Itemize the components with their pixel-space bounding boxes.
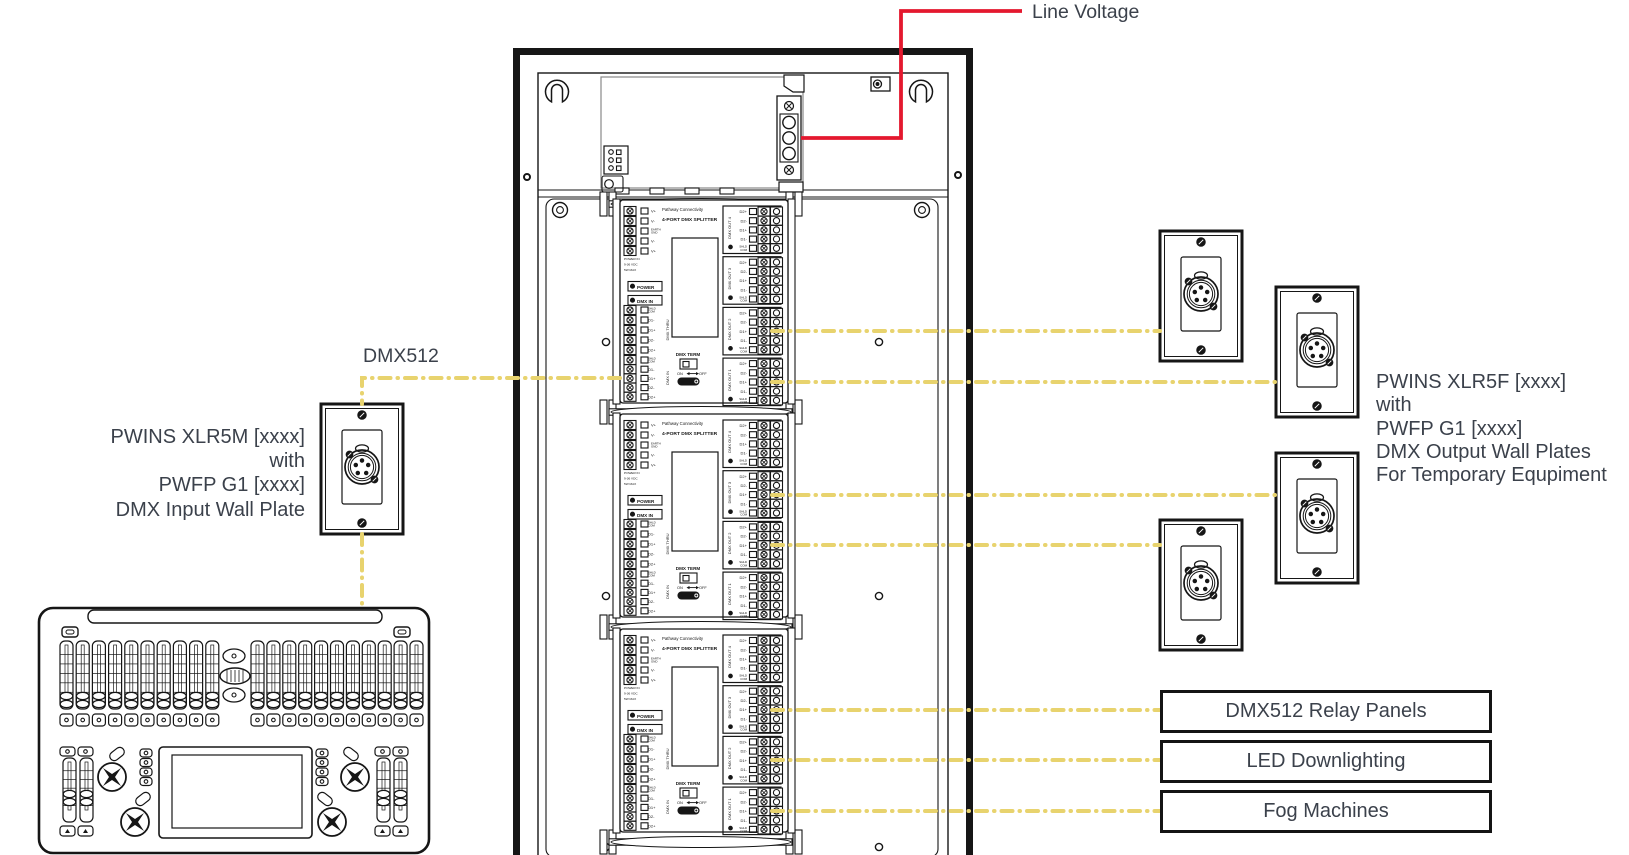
thru-label: DMX THRU bbox=[665, 319, 670, 340]
din-clamp bbox=[795, 830, 802, 854]
fader-knob bbox=[315, 692, 328, 699]
terminal-label: COM bbox=[740, 563, 747, 567]
terminal-label: D2- bbox=[741, 483, 748, 488]
terminal-label: D2- bbox=[741, 799, 748, 804]
fader-knob bbox=[141, 700, 154, 707]
fader-knob bbox=[378, 692, 391, 699]
caption-line: PWFP G1 [xxxx] bbox=[40, 473, 305, 497]
pin-icon bbox=[1206, 290, 1209, 293]
terminal-label: COM bbox=[740, 513, 747, 517]
terminal-label: GND bbox=[651, 445, 657, 449]
output-wall-plate-caption: PWINS XLR5F [xxxx] with PWFP G1 [xxxx] D… bbox=[1376, 371, 1607, 487]
terminal-label: COM bbox=[648, 360, 655, 364]
power-supply bbox=[601, 75, 804, 194]
terminal-label: D1- bbox=[741, 501, 748, 506]
fader-knob bbox=[347, 700, 360, 707]
psu-foot bbox=[685, 188, 699, 194]
dmx-splitter-module-2: Pathway Connectivity4-PORT DMX SPLITTERV… bbox=[613, 413, 795, 620]
terminal-label: D1- bbox=[741, 818, 748, 823]
din-clamp bbox=[600, 192, 607, 216]
pin-icon bbox=[1311, 354, 1314, 357]
fader-knob bbox=[377, 798, 390, 805]
terminal-label: V+ bbox=[651, 209, 657, 214]
dmx-system-diagram: Pathway Connectivity4-PORT DMX SPLITTERV… bbox=[0, 0, 1629, 855]
keyhole-mount-slot bbox=[546, 80, 569, 102]
fader-knob bbox=[410, 700, 423, 707]
terminal-label: V+ bbox=[651, 463, 657, 468]
fader-knob bbox=[93, 700, 106, 707]
terminal-label: D1+ bbox=[740, 657, 748, 662]
terminal-label: COM bbox=[740, 778, 747, 782]
pin-icon bbox=[367, 463, 370, 466]
term-on-label: ON bbox=[677, 585, 683, 590]
fader-knob bbox=[125, 700, 138, 707]
din-clamp bbox=[600, 400, 607, 424]
equipment-box-fog-machines: Fog Machines bbox=[1160, 790, 1492, 833]
output-label: DMX OUT 4 bbox=[727, 430, 732, 452]
terminal-label: COM bbox=[740, 728, 747, 732]
terminal-label: D1+ bbox=[740, 228, 748, 233]
dmx-in-label: DMX IN bbox=[665, 371, 670, 385]
din-clamp bbox=[600, 615, 607, 639]
psu-terminal-block bbox=[777, 96, 801, 180]
fader-knob bbox=[157, 700, 170, 707]
module-rail bbox=[613, 199, 620, 404]
terminal-label: D1- bbox=[741, 389, 748, 394]
terminal-label: D2+ bbox=[648, 394, 656, 399]
fader-knob bbox=[63, 798, 76, 805]
din-clamp bbox=[600, 830, 607, 854]
terminal-label: V+ bbox=[651, 638, 657, 643]
terminal-label: D1+ bbox=[740, 707, 748, 712]
dmx-term-label: DMX TERM bbox=[676, 781, 701, 786]
terminal-label: D1- bbox=[741, 552, 748, 557]
led-icon bbox=[631, 727, 635, 731]
fader-knob bbox=[394, 790, 407, 797]
pin-icon bbox=[1195, 298, 1198, 301]
output-label: DMX OUT 4 bbox=[727, 216, 732, 238]
led-label: DMX IN bbox=[637, 299, 654, 304]
fader-knob bbox=[377, 790, 390, 797]
terminal-label: D2- bbox=[741, 370, 748, 375]
output-led-icon bbox=[729, 347, 733, 351]
output-label: DMX OUT 1 bbox=[727, 797, 732, 819]
terminal-label: V- bbox=[651, 668, 655, 673]
psu-foot bbox=[650, 188, 664, 194]
terminal-label: D2- bbox=[648, 552, 655, 557]
terminal-label: D1+ bbox=[740, 329, 748, 334]
terminal-label: D1+ bbox=[740, 278, 748, 283]
fader-knob bbox=[331, 700, 344, 707]
pin-icon bbox=[1320, 520, 1323, 523]
terminal-label: COM bbox=[740, 677, 747, 681]
terminal-label: D2+ bbox=[740, 423, 748, 428]
input-wall-plate-caption: PWINS XLR5M [xxxx] with PWFP G1 [xxxx] D… bbox=[40, 425, 305, 522]
terminal-label: V+ bbox=[651, 678, 657, 683]
power-note: 9-36 VDC bbox=[624, 263, 638, 267]
plate-outer bbox=[1160, 520, 1242, 650]
module-brand: Pathway Connectivity bbox=[662, 421, 704, 426]
fader-knob bbox=[109, 692, 122, 699]
iso-label: ISO 5V bbox=[681, 593, 694, 598]
fader-knob bbox=[63, 790, 76, 797]
module-rail bbox=[788, 413, 795, 618]
terminal-label: D2+ bbox=[648, 777, 656, 782]
caption-line: PWFP G1 [xxxx] bbox=[1376, 418, 1607, 441]
din-clamp bbox=[795, 615, 802, 639]
connector-pin-icon bbox=[617, 150, 622, 155]
terminal-label: COM bbox=[740, 299, 747, 303]
terminal-label: D1+ bbox=[648, 757, 656, 762]
fader-knob bbox=[125, 692, 138, 699]
fader-knob bbox=[80, 790, 93, 797]
fader-knob bbox=[267, 692, 280, 699]
terminal-label: D1+ bbox=[740, 594, 748, 599]
pin-icon bbox=[360, 459, 363, 462]
terminal-label: D2+ bbox=[740, 525, 748, 530]
connector-pin-icon bbox=[617, 158, 622, 163]
terminal-label: D1- bbox=[741, 603, 748, 608]
fader-knob bbox=[410, 692, 423, 699]
output-led-icon bbox=[729, 510, 733, 514]
module-rail bbox=[788, 628, 795, 833]
led-label: POWER bbox=[637, 285, 655, 290]
caption-line: with bbox=[40, 449, 305, 473]
output-label: DMX OUT 1 bbox=[727, 582, 732, 604]
output-label: DMX OUT 2 bbox=[727, 318, 732, 340]
fader-knob bbox=[190, 692, 203, 699]
fader-knob bbox=[363, 700, 376, 707]
terminal-label: D1- bbox=[648, 796, 655, 801]
terminal-label: D2+ bbox=[648, 562, 656, 567]
lighting-console bbox=[39, 608, 429, 853]
output-led-icon bbox=[729, 397, 733, 401]
pin-icon bbox=[1322, 346, 1325, 349]
terminal-label: D2- bbox=[741, 647, 748, 652]
pin-icon bbox=[1206, 579, 1209, 582]
terminal-label: GND bbox=[651, 660, 657, 664]
output-led-icon bbox=[729, 674, 733, 678]
fader-knob bbox=[76, 692, 89, 699]
terminal-label: COM bbox=[740, 614, 747, 618]
terminal-label: D2- bbox=[741, 432, 748, 437]
power-note: 5W MAX bbox=[624, 268, 636, 272]
dmx-splitter-module-1: Pathway Connectivity4-PORT DMX SPLITTERV… bbox=[613, 199, 795, 406]
terminal-label: D1- bbox=[648, 532, 655, 537]
module-model: 4-PORT DMX SPLITTER bbox=[662, 217, 718, 223]
fader-knob bbox=[331, 692, 344, 699]
module-model: 4-PORT DMX SPLITTER bbox=[662, 646, 718, 652]
console-button bbox=[223, 688, 245, 702]
terminal-label: D1+ bbox=[740, 442, 748, 447]
dmx-splitter-module-3: Pathway Connectivity4-PORT DMX SPLITTERV… bbox=[613, 628, 795, 835]
terminal-label: D2- bbox=[741, 320, 748, 325]
terminal-label: V- bbox=[651, 219, 655, 224]
terminal-label: V- bbox=[651, 433, 655, 438]
caption-line: PWINS XLR5F [xxxx] bbox=[1376, 371, 1607, 394]
terminal-label: D1+ bbox=[648, 376, 656, 381]
terminal-label: D2+ bbox=[740, 311, 748, 316]
terminal-label: COM bbox=[648, 574, 655, 578]
equipment-box-relay-panels: DMX512 Relay Panels bbox=[1160, 690, 1492, 733]
terminal-label: D1+ bbox=[740, 380, 748, 385]
thru-label: DMX THRU bbox=[665, 748, 670, 769]
terminal-label: D1+ bbox=[648, 805, 656, 810]
pin-icon bbox=[1309, 346, 1312, 349]
terminal-label: D1- bbox=[648, 318, 655, 323]
din-clamp bbox=[795, 400, 802, 424]
terminal-label: D2+ bbox=[740, 474, 748, 479]
power-note: POWER IN bbox=[624, 257, 640, 261]
fader-knob bbox=[347, 692, 360, 699]
pin-icon bbox=[365, 471, 368, 474]
pin-icon bbox=[1315, 508, 1318, 511]
output-label: DMX OUT 2 bbox=[727, 747, 732, 769]
output-label: DMX OUT 3 bbox=[727, 481, 732, 503]
terminal-label: D1+ bbox=[740, 492, 748, 497]
pin-icon bbox=[1193, 290, 1196, 293]
fader-knob bbox=[141, 692, 154, 699]
fader-knob bbox=[174, 692, 187, 699]
din-clamp bbox=[795, 192, 802, 216]
dmx512-label: DMX512 bbox=[363, 345, 439, 368]
fader-knob bbox=[190, 700, 203, 707]
terminal-label: D1- bbox=[741, 451, 748, 456]
terminal-label: D1+ bbox=[648, 542, 656, 547]
fader-knob bbox=[109, 700, 122, 707]
psu-bracket bbox=[779, 182, 803, 192]
terminal-label: COM bbox=[740, 248, 747, 252]
pin-icon bbox=[1315, 342, 1318, 345]
dmx-output-wall-plate-1 bbox=[1160, 231, 1242, 361]
fader-knob bbox=[60, 692, 73, 699]
fader-knob bbox=[394, 700, 407, 707]
fader-knob bbox=[267, 700, 280, 707]
terminal-label: V+ bbox=[651, 423, 657, 428]
terminal-label: V+ bbox=[651, 249, 657, 254]
led-label: DMX IN bbox=[637, 513, 654, 518]
pin-icon bbox=[354, 463, 357, 466]
pin-icon bbox=[1311, 520, 1314, 523]
output-led-icon bbox=[729, 459, 733, 463]
power-note: 9-36 VDC bbox=[624, 477, 638, 481]
module-brand: Pathway Connectivity bbox=[662, 636, 704, 641]
fader-knob bbox=[394, 798, 407, 805]
terminal-label: V- bbox=[651, 648, 655, 653]
terminal-label: D2+ bbox=[740, 575, 748, 580]
terminal-label: D2+ bbox=[648, 348, 656, 353]
pin-icon bbox=[1199, 575, 1202, 578]
terminal-label: D2- bbox=[648, 338, 655, 343]
terminal-label: D2+ bbox=[740, 209, 748, 214]
led-icon bbox=[631, 298, 635, 302]
fader-knob bbox=[394, 692, 407, 699]
fader-knob bbox=[283, 692, 296, 699]
term-off-label: OFF bbox=[699, 800, 707, 805]
pin-icon bbox=[1309, 512, 1312, 515]
terminal-label: D1+ bbox=[648, 328, 656, 333]
fader-knob bbox=[206, 692, 219, 699]
terminal-label: D2+ bbox=[648, 608, 656, 613]
terminal-label: D2+ bbox=[648, 823, 656, 828]
fader-knob bbox=[157, 692, 170, 699]
terminal-label: GND bbox=[651, 231, 657, 235]
led-label: POWER bbox=[637, 499, 655, 504]
dmx-output-wall-plate-2 bbox=[1276, 287, 1358, 417]
terminal-label: D1+ bbox=[648, 590, 656, 595]
dmx-term-label: DMX TERM bbox=[676, 566, 701, 571]
term-on-label: ON bbox=[677, 371, 683, 376]
fader-knob bbox=[315, 700, 328, 707]
grounding-lug-icon bbox=[876, 83, 879, 86]
fader-knob bbox=[76, 700, 89, 707]
iso-label: ISO 5V bbox=[681, 808, 694, 813]
terminal-label: D1- bbox=[741, 767, 748, 772]
pin-icon bbox=[1193, 579, 1196, 582]
caption-line: DMX Output Wall Plates bbox=[1376, 441, 1607, 464]
output-led-icon bbox=[729, 725, 733, 729]
pin-icon bbox=[356, 471, 359, 474]
bracket-hole bbox=[605, 180, 614, 189]
terminal-label: D2- bbox=[648, 814, 655, 819]
fader-knob bbox=[206, 700, 219, 707]
pin-icon bbox=[1204, 298, 1207, 301]
caption-line: PWINS XLR5M [xxxx] bbox=[40, 425, 305, 449]
output-label: DMX OUT 4 bbox=[727, 645, 732, 667]
led-icon bbox=[631, 512, 635, 516]
terminal-label: D1+ bbox=[740, 543, 748, 548]
fader-knob bbox=[174, 700, 187, 707]
output-led-icon bbox=[729, 561, 733, 565]
terminal-label: D1- bbox=[741, 287, 748, 292]
dmx-in-label: DMX IN bbox=[665, 800, 670, 814]
fader-knob bbox=[299, 700, 312, 707]
terminal-label: D2- bbox=[648, 599, 655, 604]
terminal-label: D2- bbox=[741, 218, 748, 223]
terminal-label: D2- bbox=[648, 767, 655, 772]
terminal-label: D1- bbox=[648, 747, 655, 752]
terminal-label: COM bbox=[740, 829, 747, 833]
plate-outer bbox=[1276, 287, 1358, 417]
psu-foot bbox=[720, 188, 734, 194]
pin-icon bbox=[1322, 512, 1325, 515]
iso-label: ISO 5V bbox=[681, 379, 694, 384]
fader-knob bbox=[299, 692, 312, 699]
terminal-label: D1- bbox=[741, 666, 748, 671]
plate-outer bbox=[1276, 453, 1358, 583]
fader-knob bbox=[80, 798, 93, 805]
terminal-label: D1- bbox=[648, 581, 655, 586]
fader-knob bbox=[378, 700, 391, 707]
led-icon bbox=[631, 713, 635, 717]
terminal-label: V- bbox=[651, 239, 655, 244]
term-on-label: ON bbox=[677, 800, 683, 805]
console-button bbox=[223, 649, 245, 663]
terminal-label: D2+ bbox=[740, 260, 748, 265]
led-icon bbox=[631, 284, 635, 288]
chassis-screw-icon bbox=[524, 174, 530, 180]
psu-foot bbox=[615, 188, 629, 194]
terminal-label: COM bbox=[648, 739, 655, 743]
dmx-output-wall-plate-3 bbox=[1276, 453, 1358, 583]
module-rail bbox=[613, 413, 620, 618]
fader-knob bbox=[283, 700, 296, 707]
caption-line: For Temporary Equpiment bbox=[1376, 464, 1607, 487]
module-model: 4-PORT DMX SPLITTER bbox=[662, 431, 718, 437]
fader-knob bbox=[251, 692, 264, 699]
connector-pin-icon bbox=[609, 150, 614, 155]
terminal-label: D1+ bbox=[740, 758, 748, 763]
terminal-label: D2- bbox=[741, 269, 748, 274]
output-led-icon bbox=[729, 245, 733, 249]
term-off-label: OFF bbox=[699, 585, 707, 590]
pin-icon bbox=[1199, 286, 1202, 289]
dmx-term-label: DMX TERM bbox=[676, 352, 701, 357]
terminal-label: D2+ bbox=[740, 638, 748, 643]
terminal-label: COM bbox=[740, 462, 747, 466]
output-led-icon bbox=[729, 776, 733, 780]
terminal-label: D2- bbox=[648, 385, 655, 390]
terminal-label: COM bbox=[648, 789, 655, 793]
psu-bracket bbox=[784, 75, 804, 92]
chassis-screw-icon bbox=[955, 172, 961, 178]
terminal-label: D2- bbox=[741, 698, 748, 703]
terminal-label: COM bbox=[740, 400, 747, 404]
terminal-label: D2- bbox=[741, 584, 748, 589]
terminal-label: D2- bbox=[741, 749, 748, 754]
led-label: DMX IN bbox=[637, 728, 654, 733]
power-note: 9-36 VDC bbox=[624, 692, 638, 696]
caption-line: DMX Input Wall Plate bbox=[40, 498, 305, 522]
power-note: 5W MAX bbox=[624, 697, 636, 701]
terminal-label: D2- bbox=[741, 534, 748, 539]
terminal-label: COM bbox=[648, 524, 655, 528]
output-label: DMX OUT 3 bbox=[727, 267, 732, 289]
equipment-box-led-downlighting: LED Downlighting bbox=[1160, 740, 1492, 783]
line-voltage-label: Line Voltage bbox=[1032, 1, 1139, 24]
terminal-label: D2+ bbox=[740, 689, 748, 694]
keyhole-mount-slot bbox=[910, 80, 933, 102]
output-label: DMX OUT 1 bbox=[727, 368, 732, 390]
module-rail bbox=[788, 199, 795, 404]
terminal-label: D1- bbox=[741, 338, 748, 343]
output-label: DMX OUT 3 bbox=[727, 696, 732, 718]
dmx-in-label: DMX IN bbox=[665, 585, 670, 599]
plate-outer bbox=[1160, 231, 1242, 361]
terminal-label: D1+ bbox=[740, 809, 748, 814]
connector-pin-icon bbox=[609, 166, 614, 171]
output-label: DMX OUT 2 bbox=[727, 532, 732, 554]
output-led-icon bbox=[729, 826, 733, 830]
dmx-output-wall-plate-4 bbox=[1160, 520, 1242, 650]
terminal-label: COM bbox=[648, 310, 655, 314]
output-led-icon bbox=[729, 611, 733, 615]
pin-icon bbox=[1320, 354, 1323, 357]
pin-icon bbox=[1204, 587, 1207, 590]
thru-label: DMX THRU bbox=[665, 533, 670, 554]
pin-icon bbox=[1195, 587, 1198, 590]
terminal-label: D1- bbox=[741, 716, 748, 721]
module-rail bbox=[613, 628, 620, 833]
fader-knob bbox=[363, 692, 376, 699]
dmx-input-wall-plate bbox=[321, 404, 403, 534]
line-voltage-wire bbox=[801, 11, 1022, 138]
terminal-label: D2+ bbox=[740, 361, 748, 366]
output-led-icon bbox=[729, 296, 733, 300]
plate-outer bbox=[321, 404, 403, 534]
caption-line: with bbox=[1376, 394, 1607, 417]
led-label: POWER bbox=[637, 714, 655, 719]
